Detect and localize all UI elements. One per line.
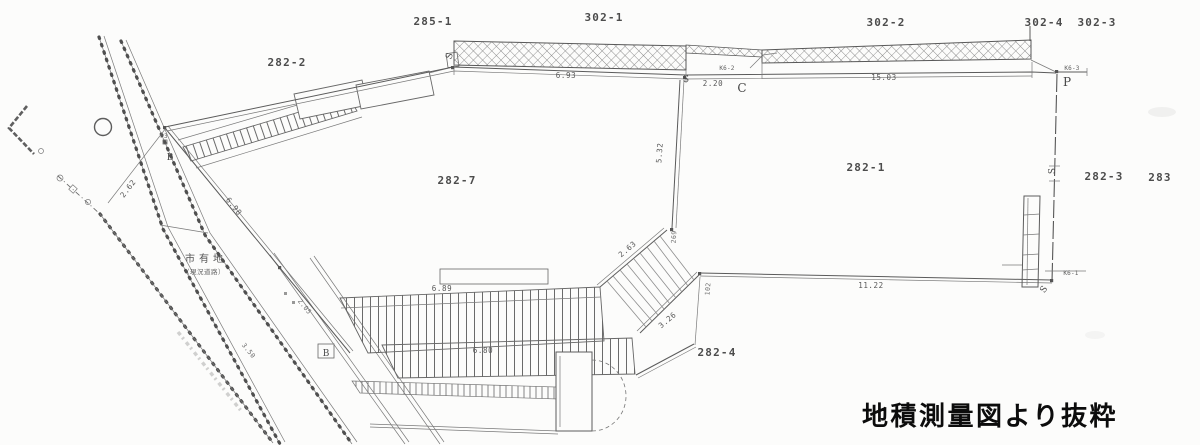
measurement-6-93: 6.93 bbox=[556, 71, 576, 80]
survey-marker-k6-2: K6-2 bbox=[719, 65, 734, 72]
survey-point bbox=[278, 266, 281, 269]
hatched-band-segment bbox=[454, 41, 686, 70]
hatched-band-sliver bbox=[686, 45, 762, 57]
measurement-5-32: 5.32 bbox=[654, 142, 664, 163]
scan-smudge bbox=[1148, 107, 1176, 117]
survey-marker-s-2: S bbox=[683, 75, 689, 85]
survey-point bbox=[1050, 279, 1053, 282]
measurement-6-80: 6.80 bbox=[473, 346, 493, 355]
survey-marker-c: C bbox=[737, 81, 746, 95]
manhole-circle-symbol bbox=[95, 119, 112, 136]
survey-point bbox=[1055, 70, 1058, 73]
measurement-11-22: 11.22 bbox=[858, 281, 884, 290]
band-corner-connector bbox=[1031, 60, 1056, 72]
central-division-double bbox=[676, 80, 684, 228]
survey-point bbox=[451, 66, 454, 69]
wall-tick bbox=[1024, 214, 1040, 215]
survey-marker-p3: P3 bbox=[160, 133, 168, 140]
survey-point bbox=[698, 272, 701, 275]
hatched-band-segment bbox=[762, 40, 1031, 63]
small-circle-symbol bbox=[39, 149, 44, 154]
parcel-label-283: 283 bbox=[1148, 171, 1171, 184]
landing-notch bbox=[440, 269, 548, 284]
lower-structure-line bbox=[370, 427, 558, 434]
road-edge-line bbox=[100, 214, 273, 443]
cadastral-map-page: 285-1 302-1 302-2 302-4 302-3 282-2 282-… bbox=[0, 0, 1200, 445]
parcel-label-282-2: 282-2 bbox=[267, 56, 306, 69]
survey-point bbox=[163, 126, 166, 129]
east-boundary bbox=[1052, 74, 1057, 282]
survey-marker-k6-3: K6-3 bbox=[1064, 65, 1079, 72]
wall-tick bbox=[1023, 234, 1039, 235]
parcel-label-282-3: 282-3 bbox=[1084, 170, 1123, 183]
wall-outline bbox=[1022, 196, 1040, 287]
measurement-102: 102 bbox=[703, 282, 712, 296]
upper-stairway-282-2 bbox=[178, 67, 453, 168]
illegible-road-label bbox=[178, 332, 242, 412]
survey-point bbox=[284, 292, 287, 295]
city-land-label: 市有地 bbox=[185, 252, 227, 265]
measurement-6-98: 6.98 bbox=[224, 196, 244, 218]
survey-marker-s-4: S bbox=[1038, 284, 1050, 295]
dash-dot-line bbox=[58, 176, 100, 214]
wall-tick bbox=[1023, 254, 1039, 255]
measurement-269: 269 bbox=[670, 230, 679, 243]
chevron-mark bbox=[9, 106, 34, 154]
measurement-6-89: 6.89 bbox=[432, 284, 452, 293]
stair-band-2 bbox=[382, 338, 635, 378]
measurement-2-62: 2.62 bbox=[118, 178, 138, 200]
top-road-band-hatched bbox=[446, 26, 1056, 72]
central-division-line bbox=[672, 80, 680, 228]
edge-connector bbox=[695, 277, 700, 345]
parcel-label-302-3: 302-3 bbox=[1077, 16, 1116, 29]
survey-marker-b-1: B bbox=[167, 153, 174, 163]
map-caption: 地積測量図より抜粋 bbox=[862, 396, 1162, 433]
measurement-2-63: 2.63 bbox=[617, 239, 638, 259]
parcel-label-302-2: 302-2 bbox=[866, 16, 905, 29]
survey-marker-s-3: S bbox=[1048, 168, 1058, 174]
wall-tick bbox=[1022, 269, 1038, 270]
survey-marker-b-2: B bbox=[323, 349, 330, 359]
measurement-2-20: 2.20 bbox=[703, 79, 723, 88]
entrance-rectangle bbox=[556, 352, 592, 431]
stair-band-3 bbox=[352, 381, 591, 400]
parcel-label-285-1: 285-1 bbox=[413, 15, 452, 28]
survey-marker-p: P bbox=[1063, 75, 1071, 89]
retaining-wall bbox=[1002, 196, 1040, 287]
wall-inner-line bbox=[1027, 198, 1028, 285]
scan-smudge bbox=[1085, 331, 1105, 339]
parcel-label-302-1: 302-1 bbox=[584, 11, 623, 24]
survey-point bbox=[292, 301, 295, 304]
corner-symbols bbox=[9, 106, 112, 154]
parcel-282-4-nw-edge bbox=[636, 344, 694, 375]
measurement-3-50: 3.50 bbox=[240, 342, 257, 360]
city-land-note: （現況道路） bbox=[183, 267, 225, 276]
survey-marker-k6-1: K6-1 bbox=[1063, 270, 1078, 277]
parcel-282-4-nw-edge-double bbox=[638, 347, 696, 378]
road-edge-line bbox=[104, 36, 285, 442]
parcel-label-282-7: 282-7 bbox=[437, 174, 476, 187]
parcel-label-282-1: 282-1 bbox=[846, 161, 885, 174]
south-boundary-282-1 bbox=[700, 273, 1052, 280]
boundary-connector bbox=[108, 128, 166, 203]
parcel-label-302-4: 302-4 bbox=[1024, 16, 1063, 29]
survey-map-drawing: 285-1 302-1 302-2 302-4 302-3 282-2 282-… bbox=[0, 0, 1200, 445]
measurement-15-03: 15.03 bbox=[871, 73, 897, 82]
parcel-label-282-4: 282-4 bbox=[697, 346, 736, 359]
parcel-west-boundary bbox=[165, 128, 350, 353]
measurement-2-05: 2.05 bbox=[296, 298, 313, 316]
door-swing-arc bbox=[592, 396, 626, 431]
slope-edge-upper bbox=[600, 230, 667, 287]
landing-rectangle bbox=[356, 71, 434, 109]
lower-structure-line bbox=[370, 424, 558, 431]
